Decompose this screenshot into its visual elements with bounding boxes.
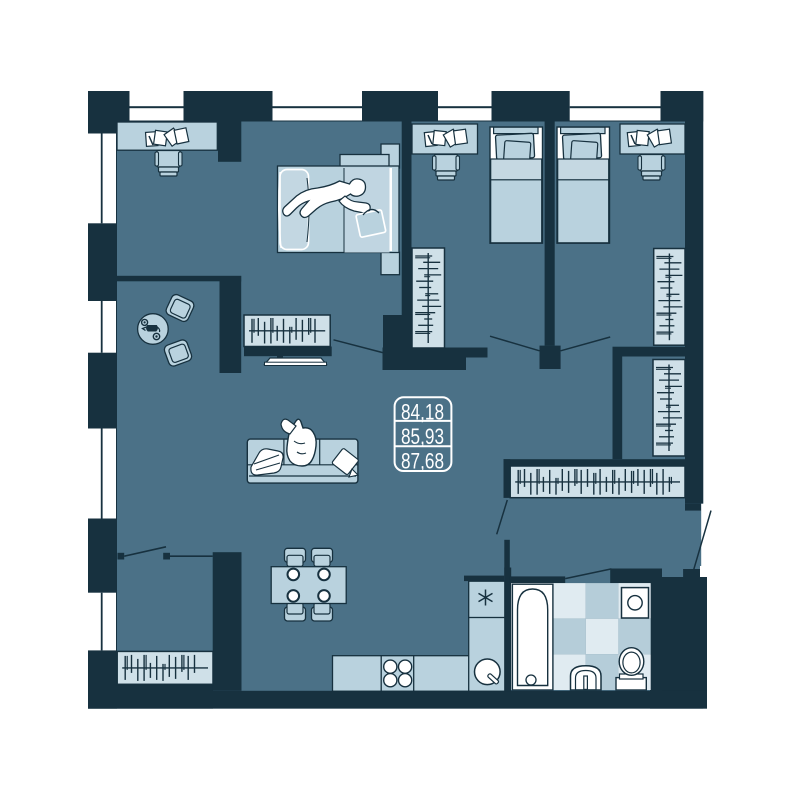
svg-text:84,18: 84,18 — [401, 400, 444, 425]
svg-text:87,68: 87,68 — [401, 449, 444, 474]
svg-text:85,93: 85,93 — [401, 424, 444, 449]
